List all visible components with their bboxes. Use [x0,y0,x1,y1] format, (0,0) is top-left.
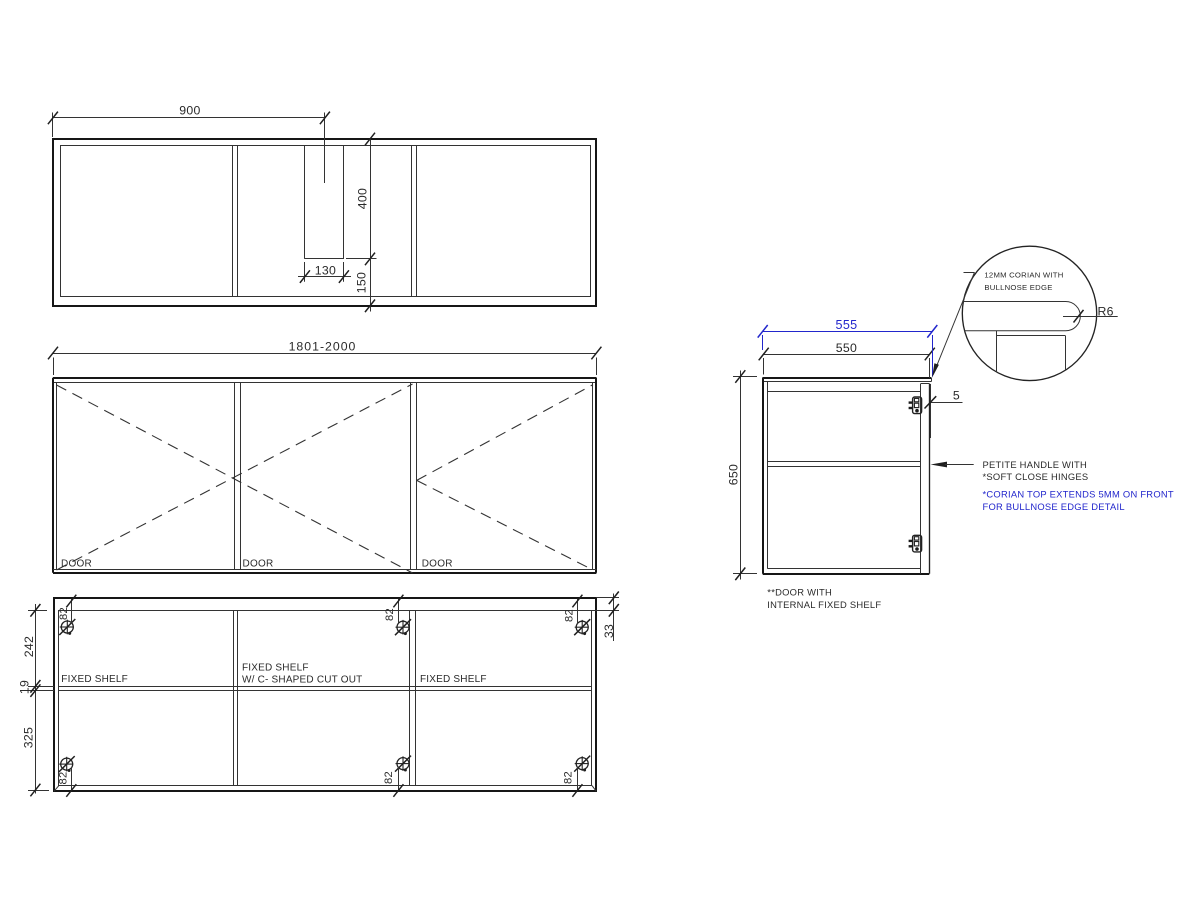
svg-text:12MM CORIAN WITH: 12MM CORIAN WITH [984,271,1063,280]
svg-text:150: 150 [355,272,369,293]
svg-text:82: 82 [384,608,396,621]
svg-text:FIXED SHELF: FIXED SHELF [61,674,128,685]
svg-text:W/ C- SHAPED CUT OUT: W/ C- SHAPED CUT OUT [242,675,362,686]
svg-text:INTERNAL FIXED SHELF: INTERNAL FIXED SHELF [767,599,881,610]
svg-text:5: 5 [953,388,960,402]
svg-text:82: 82 [564,609,576,622]
svg-text:82: 82 [58,772,70,785]
svg-text:BULLNOSE EDGE: BULLNOSE EDGE [984,283,1052,292]
svg-text:400: 400 [356,188,370,209]
svg-text:R6: R6 [1098,304,1114,318]
svg-text:FIXED SHELF: FIXED SHELF [242,663,309,674]
svg-text:19: 19 [18,680,32,694]
svg-text:*SOFT CLOSE HINGES: *SOFT CLOSE HINGES [983,471,1089,482]
svg-text:1801-2000: 1801-2000 [289,340,357,354]
svg-text:DOOR: DOOR [61,559,92,570]
svg-text:*CORIAN TOP EXTENDS 5MM ON FRO: *CORIAN TOP EXTENDS 5MM ON FRONT [983,489,1174,500]
svg-text:33: 33 [602,624,616,638]
svg-text:130: 130 [315,264,336,278]
svg-text:650: 650 [727,464,741,485]
svg-text:82: 82 [563,771,575,784]
svg-text:**DOOR WITH: **DOOR WITH [767,587,832,598]
svg-text:555: 555 [836,318,858,332]
svg-text:82: 82 [58,607,70,620]
svg-text:FIXED SHELF: FIXED SHELF [420,674,487,685]
svg-text:325: 325 [22,727,36,748]
svg-text:550: 550 [836,341,857,355]
svg-text:DOOR: DOOR [422,559,453,570]
svg-text:FOR BULLNOSE EDGE DETAIL: FOR BULLNOSE EDGE DETAIL [983,501,1125,512]
svg-text:DOOR: DOOR [243,559,274,570]
svg-text:PETITE HANDLE WITH: PETITE HANDLE WITH [983,459,1088,470]
svg-text:242: 242 [22,636,36,657]
svg-text:900: 900 [179,103,200,117]
svg-text:82: 82 [383,771,395,784]
